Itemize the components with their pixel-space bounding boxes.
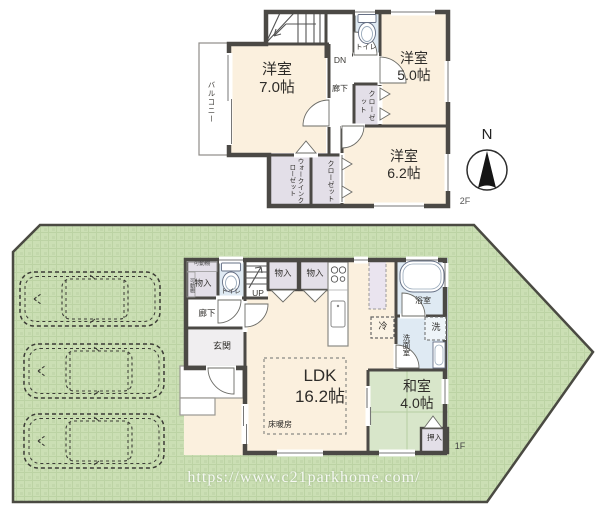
closet-bottom-label: クローゼット [319,158,334,203]
washer-label: 洗 [428,322,444,333]
fridge-label: 冷 [374,321,392,332]
watermark-url: https://www.c21parkhome.com/ [158,469,450,488]
room-62-label: 洋室 6.2帖 [372,148,436,181]
bath-label: 浴室 [406,296,440,305]
up-label: UP [248,288,268,298]
toilet-1f-label: トイレ [219,288,243,296]
dn-label: DN [329,55,351,65]
ldk-label: LDK 16.2帖 [282,366,358,407]
storage-1-label: 物入 [268,268,298,278]
kitchen-counter [328,262,348,346]
room-7-label: 洋室 7.0帖 [236,61,318,96]
toilet-icon-2f [358,15,376,44]
floor2-label: 2F [455,196,475,207]
vanity-icon [433,342,445,368]
genkan-label: 玄関 [205,341,239,352]
balcony-label: バルコニー [201,62,216,142]
storage-small-label: 物入 [190,278,216,288]
hallway-2f-label: 廊下 [329,84,351,93]
floor1-label: 1F [450,441,470,452]
bathtub-icon [400,261,444,292]
closet-mid-label: クローゼット [359,87,375,125]
washitsu-label: 和室 4.0帖 [392,378,442,411]
floorplan-image: バルコニー 洋室 7.0帖 洋室 5.0帖 洋室 6.2帖 トイレ DN 廊下 … [0,0,600,514]
room-5-label: 洋室 5.0帖 [382,50,446,83]
washroom-label: 洗面室 [399,323,411,367]
toilet-2f-label: トイレ [352,44,380,52]
walk-in-closet-label: ウォークインクローゼット [278,157,303,204]
hallway-1f-label: 廊下 [193,308,221,318]
storage-2-label: 物入 [300,268,330,278]
shelf-top-label: 可動棚 [188,261,216,267]
north-label: N [478,126,496,144]
floor-heating-label: 床暖房 [268,420,308,429]
north-compass [467,150,507,190]
oshiire-label: 押入 [423,434,446,443]
